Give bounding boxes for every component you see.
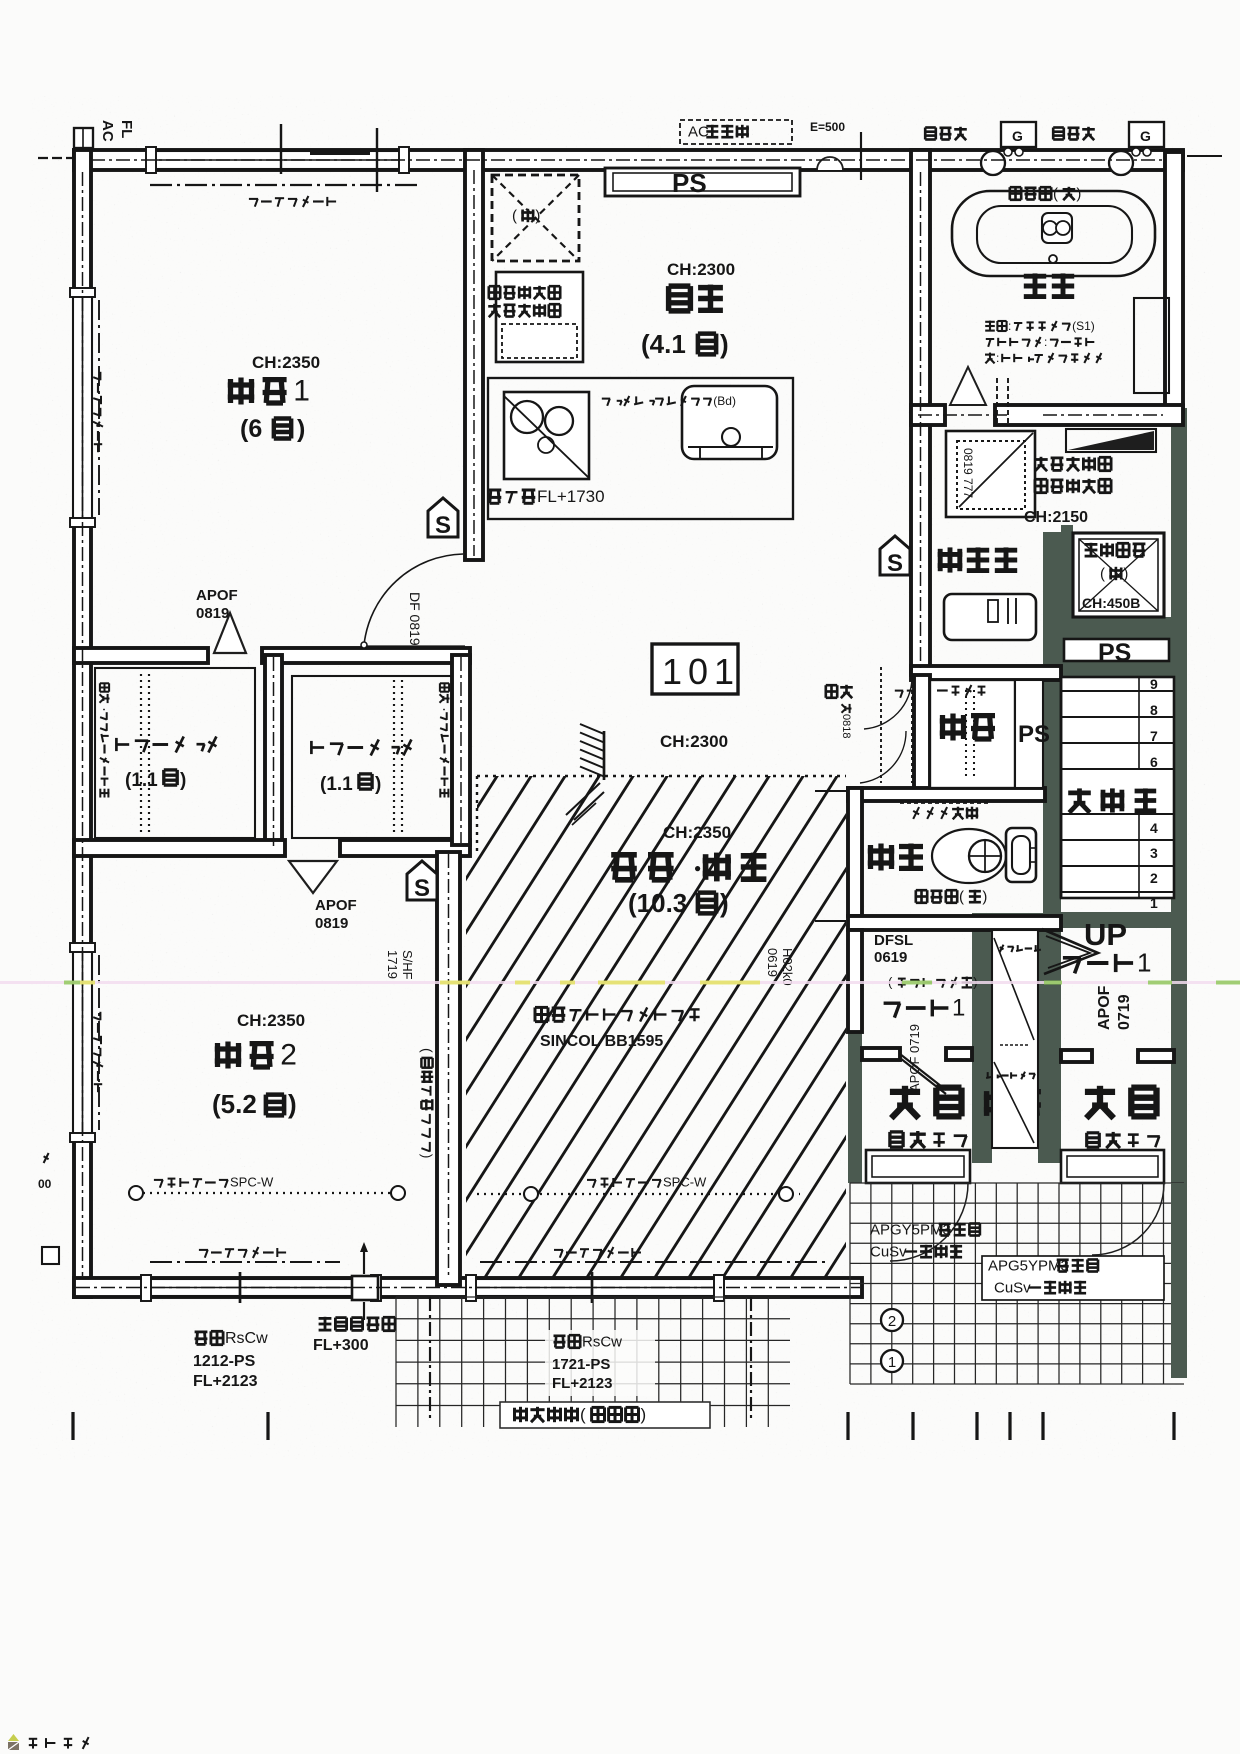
svg-text:(Bd): (Bd) [713,394,736,408]
svg-text:00: 00 [38,1177,52,1191]
svg-text:AC: AC [99,120,116,142]
svg-text:SPC-W: SPC-W [230,1175,274,1190]
svg-text:PS: PS [1018,721,1050,748]
svg-text:CH:2300: CH:2300 [660,732,728,751]
svg-text:SPC-W: SPC-W [663,1175,707,1190]
svg-text:1: 1 [1137,947,1151,977]
svg-text:CuSv: CuSv [994,1279,1031,1296]
svg-text:FL+2123: FL+2123 [193,1373,258,1390]
svg-text:9: 9 [1150,676,1158,692]
svg-text:APOF: APOF [315,897,357,914]
svg-text:): ) [1123,565,1128,582]
svg-text:S: S [887,550,903,577]
svg-text:1719: 1719 [385,950,400,979]
svg-text:(1.1: (1.1 [320,774,353,795]
svg-text:4: 4 [1150,820,1158,836]
svg-text:CH:2150: CH:2150 [1024,509,1088,526]
svg-text:(: ( [959,888,964,905]
svg-text:FL+1730: FL+1730 [537,487,605,506]
svg-text:FL+300: FL+300 [313,1337,369,1354]
svg-text:): ) [288,1089,297,1119]
svg-text:AC: AC [688,123,709,140]
svg-text:UP: UP [1084,917,1127,952]
svg-text:SINCOL BB1595: SINCOL BB1595 [540,1033,663,1050]
svg-text:): ) [1076,185,1081,202]
svg-text::: : [1008,319,1011,333]
svg-text:1: 1 [888,1354,896,1371]
svg-text::: : [1044,335,1047,349]
svg-text:1: 1 [293,375,310,408]
svg-text:2: 2 [280,1039,297,1072]
svg-text:CuSv: CuSv [870,1243,907,1260]
svg-text:): ) [420,1154,436,1159]
svg-text:3: 3 [1150,845,1158,861]
svg-text:7: 7 [1150,728,1158,744]
svg-text:(6: (6 [240,415,262,443]
svg-text:0819: 0819 [315,915,348,932]
svg-text::: : [996,351,999,365]
svg-text:): ) [641,1405,647,1424]
svg-text:CH:2300: CH:2300 [667,260,735,279]
svg-text:DFSL: DFSL [874,932,913,949]
svg-text:G: G [1140,128,1151,144]
svg-text:PS: PS [1098,639,1131,667]
svg-text:(: ( [1053,185,1058,202]
svg-text:H02k0: H02k0 [780,948,795,986]
svg-text:0619: 0619 [765,948,780,977]
svg-text:CH:2350: CH:2350 [237,1011,305,1030]
svg-text:(: ( [420,1048,436,1053]
svg-text:CH:450B: CH:450B [1082,595,1140,611]
svg-text:): ) [720,888,729,918]
svg-text:): ) [720,329,729,359]
svg-text:DF 0819: DF 0819 [407,592,423,646]
svg-text:0819: 0819 [196,605,229,622]
svg-text:APOF: APOF [196,587,238,604]
svg-text:PS: PS [672,168,707,198]
svg-text:): ) [180,770,186,791]
svg-text:G: G [1012,128,1023,144]
svg-text:E=500: E=500 [810,120,845,134]
svg-text:2: 2 [1150,870,1158,886]
svg-text:FL: FL [118,120,135,138]
svg-text:(4.1: (4.1 [641,329,686,359]
svg-text:1721-PS: 1721-PS [552,1356,610,1373]
svg-text:(5.2: (5.2 [212,1089,257,1119]
svg-text:RsCw: RsCw [225,1330,268,1347]
svg-text:0619: 0619 [874,949,907,966]
svg-text:(1.1: (1.1 [125,770,158,791]
svg-text:0818: 0818 [840,714,852,738]
svg-text:0719: 0719 [1116,994,1133,1030]
svg-text:2: 2 [888,1313,896,1330]
svg-text:(: ( [512,207,517,224]
svg-text:1: 1 [1150,895,1158,911]
svg-text:6: 6 [1150,754,1158,770]
svg-text:101: 101 [662,651,740,692]
svg-text:FL+2123: FL+2123 [552,1375,612,1392]
svg-text:): ) [982,888,987,905]
svg-text:(10.3: (10.3 [628,888,687,918]
svg-text:8: 8 [1150,702,1158,718]
svg-text:CH:2350: CH:2350 [663,823,731,842]
svg-text:1: 1 [952,995,965,1022]
svg-text:APOF 0719: APOF 0719 [907,1024,922,1092]
svg-text:0819 777: 0819 777 [961,448,975,498]
svg-text:1212-PS: 1212-PS [193,1353,256,1370]
svg-text:APOF: APOF [1096,985,1113,1030]
svg-text:): ) [535,207,540,224]
svg-text:(S1): (S1) [1072,319,1095,333]
svg-text:(: ( [580,1405,586,1424]
svg-text:S: S [414,875,430,902]
svg-text:RsCw: RsCw [582,1333,622,1350]
svg-text:): ) [297,415,305,443]
svg-text:S: S [435,512,451,539]
svg-text:): ) [375,774,381,795]
svg-text:(: ( [1100,565,1105,582]
svg-text:S/HF: S/HF [400,950,415,980]
svg-text:CH:2350: CH:2350 [252,353,320,372]
